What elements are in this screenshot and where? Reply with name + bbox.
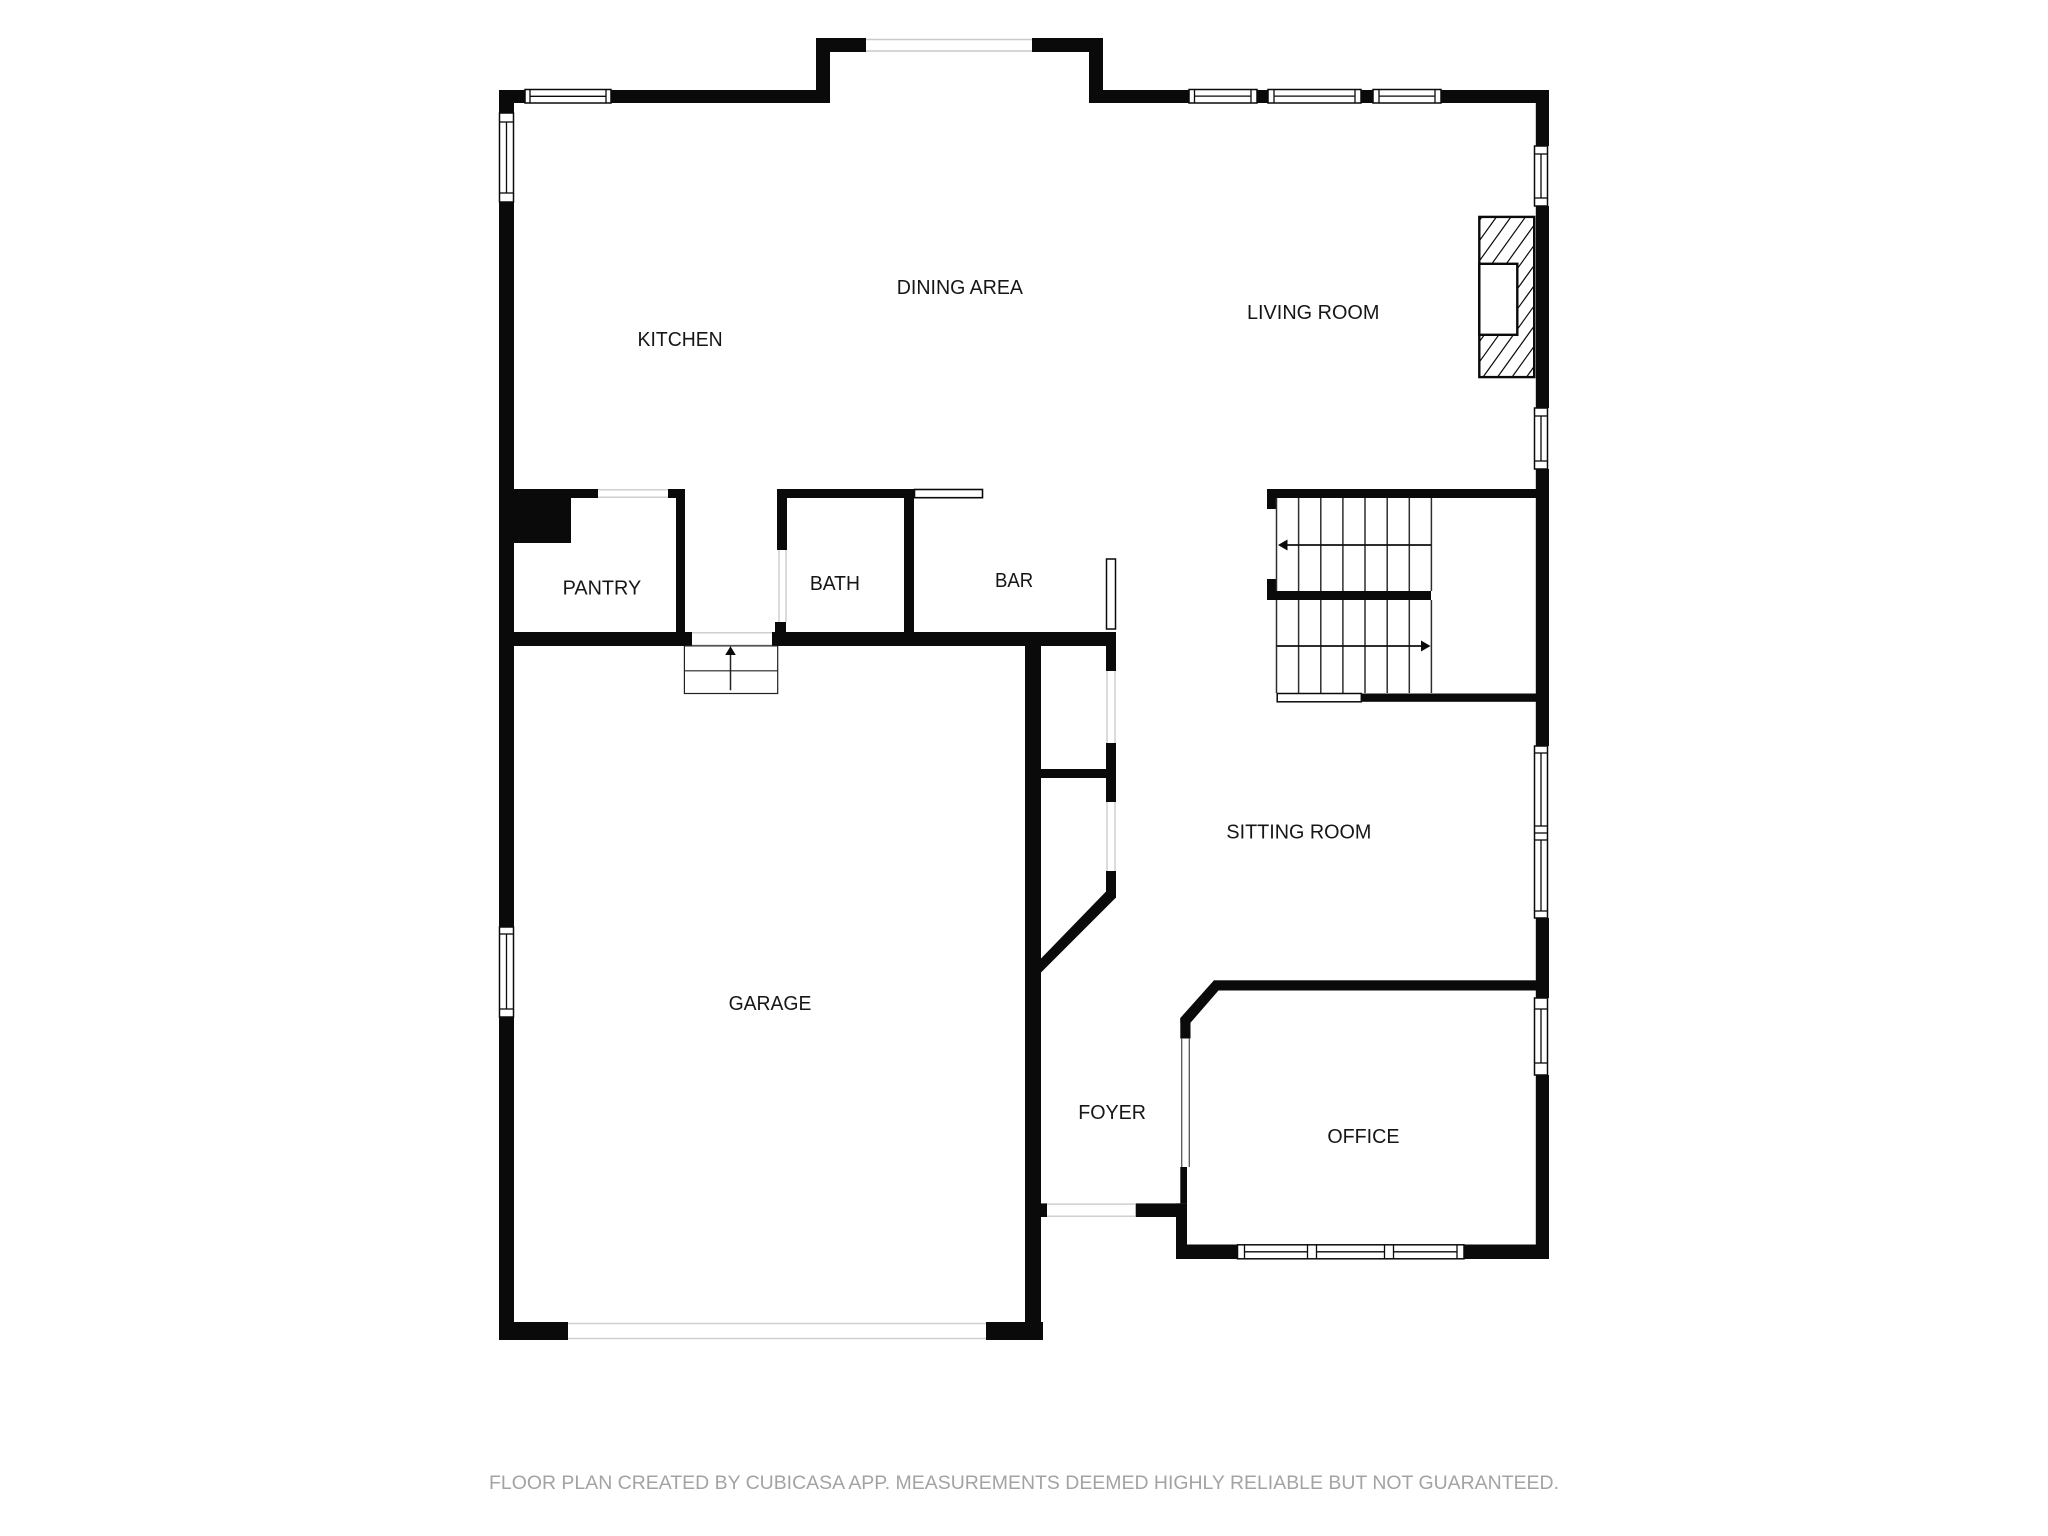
svg-text:BATH: BATH (810, 573, 860, 595)
svg-text:PANTRY: PANTRY (563, 578, 642, 600)
svg-text:KITCHEN: KITCHEN (638, 329, 723, 351)
svg-text:GARAGE: GARAGE (729, 993, 812, 1015)
svg-text:DINING AREA: DINING AREA (897, 277, 1024, 299)
svg-text:BAR: BAR (995, 570, 1033, 592)
svg-text:SITTING ROOM: SITTING ROOM (1226, 821, 1371, 843)
svg-text:LIVING ROOM: LIVING ROOM (1247, 302, 1379, 324)
svg-text:OFFICE: OFFICE (1327, 1126, 1399, 1148)
svg-text:FOYER: FOYER (1078, 1102, 1146, 1124)
svg-text:FLOOR PLAN CREATED BY CUBICASA: FLOOR PLAN CREATED BY CUBICASA APP. MEAS… (489, 1473, 1559, 1494)
